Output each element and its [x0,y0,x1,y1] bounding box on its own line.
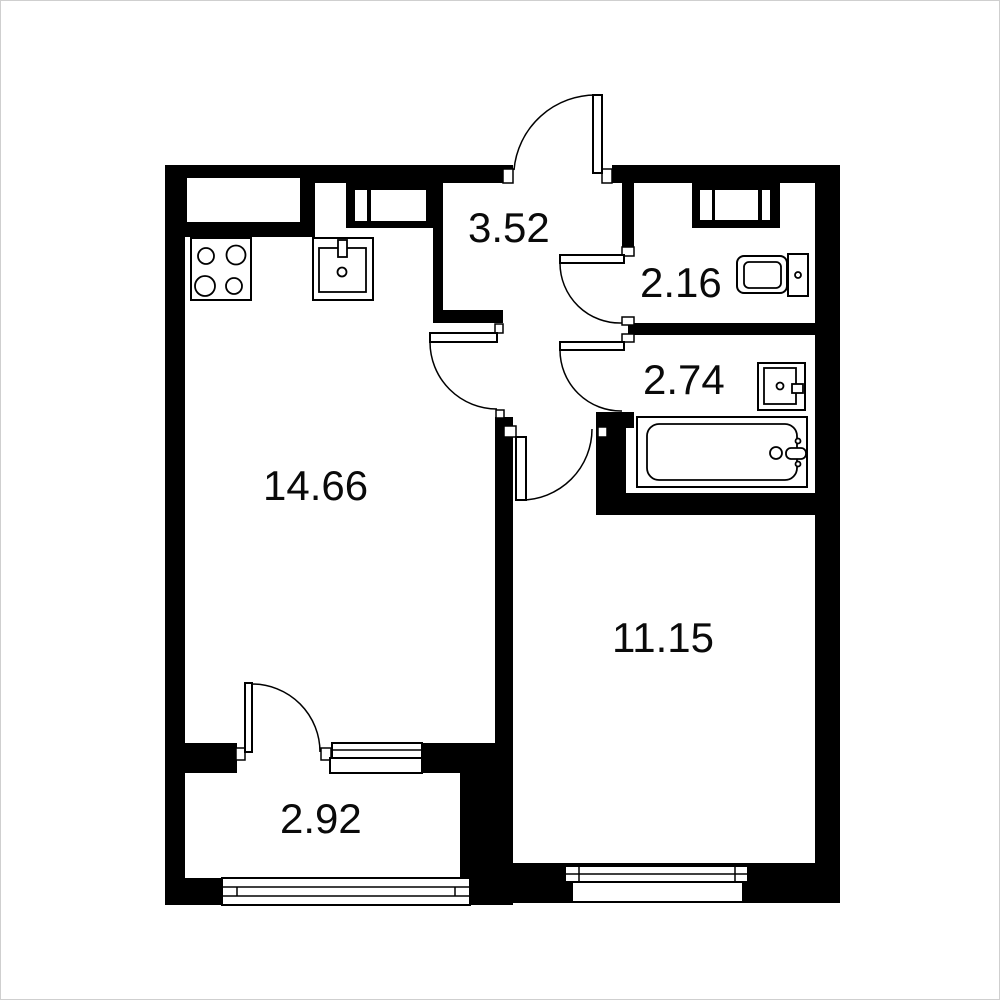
door-jamb [622,317,634,325]
vent-cell [355,190,367,221]
balcony-glazing [222,878,470,905]
wall-top-a [315,165,513,183]
wall-right [815,165,840,903]
basin-tap [792,384,803,393]
door-jamb [504,426,516,437]
wall-hall-west [433,183,443,315]
window-sill [330,758,422,773]
wall-hall-west-bar [433,310,503,323]
wall-kitchen-room [495,417,513,743]
bathtub-drain [770,447,782,459]
toilet-door-leaf [560,255,624,263]
wall-left [165,165,185,905]
door-jamb [622,334,634,342]
sink-drain [338,268,347,277]
entrance-door-arc [514,95,597,170]
door-jamb [602,169,612,183]
vent-cell [715,190,758,220]
wall-top-b [612,165,840,183]
vent-cell [415,190,426,221]
bathtub-icon [637,417,807,487]
wall-bathroom-floor [612,493,815,515]
balcony-door-arc [252,684,320,752]
toilet-flush-button [795,272,801,278]
stove-icon [191,238,251,300]
door-jamb [598,427,607,437]
floor-plan-svg: 14.66 3.52 2.16 2.74 11.15 2.92 [0,0,1000,1000]
entrance-door-leaf [593,95,602,173]
door-jamb [236,748,245,760]
room-area-label-room: 11.15 [612,614,714,661]
stove-burner [227,246,246,265]
door-jamb [503,169,513,183]
stove-burner [195,276,215,296]
kitchen-door-leaf [430,333,497,342]
wall-balcony-corner [165,878,222,905]
bathtub-faucet [786,448,806,459]
balcony-door-leaf [245,683,252,752]
vent-cell [371,190,415,221]
wall-niche [187,178,300,222]
washbasin-icon [758,363,805,410]
room-area-label-kitchen: 14.66 [263,462,368,509]
door-jamb [495,324,503,333]
kitchen-sink-icon [313,238,373,300]
wall-toilet-bath-divider [628,323,815,335]
window-sill [572,882,743,902]
vent-cell [700,190,712,220]
stove-burner [198,248,214,264]
floor-plan-canvas: 14.66 3.52 2.16 2.74 11.15 2.92 [0,0,1000,1000]
basin-drain [777,383,784,390]
bathroom-door-leaf [560,342,624,350]
room-area-label-bathroom: 2.74 [643,356,725,403]
bathroom-door-arc [560,350,622,411]
room-area-label-balcony: 2.92 [280,795,362,842]
wall-balcony-partition-left [165,743,237,773]
toilet-icon [737,254,808,296]
sink-tap [338,240,347,257]
bathtub-valve [796,462,801,467]
door-jamb [496,410,504,418]
stove-burner [226,278,242,294]
toilet-door-arc [560,263,622,323]
room-door-arc [521,429,592,500]
kitchen-door-arc [430,342,497,409]
room-area-label-hallway: 3.52 [468,204,550,251]
vent-cell [762,190,770,220]
wall-hall-east [622,183,634,247]
bathtub-valve [796,439,801,444]
toilet-bowl-inner [744,262,781,288]
room-area-label-toilet: 2.16 [640,259,722,306]
room-door-leaf [516,437,526,500]
